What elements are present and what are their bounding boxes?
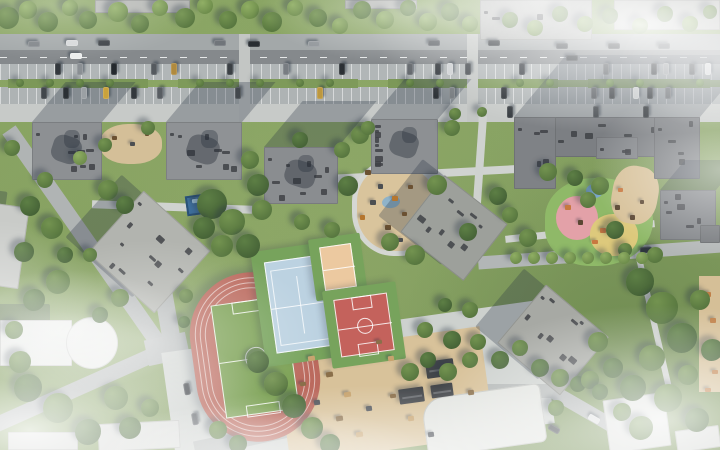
- roof-unit: [89, 164, 95, 170]
- equipment-item: [336, 416, 344, 422]
- roof-unit: [223, 164, 229, 170]
- roof-unit: [534, 132, 540, 135]
- equipment-item: [130, 142, 135, 146]
- car: [55, 63, 61, 75]
- roof-unit: [585, 133, 593, 139]
- equipment-item: [408, 416, 415, 422]
- roof-unit: [109, 262, 116, 269]
- roof-unit: [196, 165, 202, 168]
- roof-unit: [83, 134, 87, 140]
- car: [111, 63, 117, 75]
- roof-unit: [558, 140, 564, 143]
- roof-unit: [537, 333, 544, 340]
- car: [663, 63, 669, 75]
- roof-unit: [678, 152, 684, 155]
- car: [566, 55, 578, 61]
- car: [633, 87, 639, 99]
- tree: [75, 419, 101, 445]
- roof-unit: [425, 226, 432, 233]
- roof-unit: [600, 148, 604, 151]
- roof-unit: [559, 353, 567, 361]
- roof-unit: [272, 181, 280, 184]
- court-key: [351, 295, 373, 311]
- roof-unit: [126, 222, 133, 229]
- apartment-slab: [166, 122, 242, 180]
- roof-unit: [571, 131, 577, 137]
- car: [658, 43, 670, 49]
- court-center-circle: [356, 317, 374, 335]
- car: [449, 87, 455, 99]
- car: [157, 87, 163, 99]
- car: [214, 40, 226, 46]
- equipment-item: [618, 188, 623, 192]
- car: [435, 63, 441, 75]
- roof-unit: [675, 194, 681, 200]
- roof-unit: [184, 247, 192, 255]
- car: [407, 63, 413, 75]
- roof-unit: [178, 267, 184, 273]
- equipment-item: [640, 200, 644, 204]
- roof-unit: [524, 314, 531, 321]
- car: [63, 87, 69, 99]
- roof-blotch: [298, 155, 314, 172]
- roof-unit: [147, 280, 153, 286]
- roof-unit: [456, 210, 464, 217]
- car: [488, 40, 500, 46]
- roof-unit: [222, 151, 230, 154]
- roof-unit: [178, 135, 182, 138]
- kiosk-ridge: [433, 389, 451, 393]
- car: [339, 63, 345, 75]
- equipment-item: [308, 356, 316, 362]
- car: [317, 87, 323, 99]
- car: [235, 87, 241, 99]
- roof-unit: [686, 225, 694, 228]
- car: [81, 87, 87, 99]
- roof-unit: [549, 298, 556, 304]
- roof-unit: [300, 192, 306, 195]
- roof-unit: [120, 242, 125, 247]
- kiosk-ridge: [402, 394, 422, 399]
- roof-unit: [478, 224, 483, 229]
- roof-unit: [155, 234, 165, 244]
- roof-unit: [118, 268, 126, 276]
- roof-unit: [86, 149, 94, 152]
- equipment-item: [712, 370, 718, 374]
- roof-unit: [540, 296, 545, 301]
- equipment-item: [578, 220, 583, 225]
- walkway: [467, 34, 478, 122]
- equipment-item: [710, 318, 716, 323]
- roof-unit: [149, 255, 157, 263]
- roof-unit: [321, 189, 327, 195]
- roof-unit: [375, 149, 383, 152]
- roof-unit: [598, 124, 606, 127]
- car: [66, 40, 78, 46]
- roof-unit: [622, 150, 630, 153]
- equipment-item: [300, 382, 306, 387]
- car: [465, 63, 471, 75]
- equipment-item: [360, 215, 365, 220]
- car: [28, 41, 40, 47]
- car: [591, 87, 597, 99]
- white-building-southwest: [8, 432, 78, 450]
- car: [647, 87, 653, 99]
- equipment-item: [408, 185, 413, 189]
- equipment-item: [378, 184, 383, 189]
- car: [428, 40, 440, 46]
- roof-unit: [279, 195, 285, 201]
- roof-unit: [375, 125, 381, 128]
- equipment-item: [356, 432, 364, 438]
- apartment-slab: [264, 147, 338, 204]
- roof-unit: [666, 211, 672, 214]
- car: [651, 63, 657, 75]
- court-centerline: [323, 266, 355, 271]
- roof-unit: [469, 212, 477, 219]
- equipment-item: [565, 205, 571, 210]
- roof-unit: [137, 202, 142, 207]
- roof-unit: [492, 17, 500, 20]
- equipment-item: [615, 205, 620, 210]
- roof-unit: [80, 165, 86, 168]
- car: [501, 87, 507, 99]
- roof-unit: [518, 128, 522, 131]
- tree: [701, 339, 720, 361]
- car: [131, 87, 137, 99]
- car: [98, 40, 110, 46]
- roof-unit: [460, 243, 468, 251]
- roof-unit: [325, 167, 329, 173]
- roof-blotch: [201, 130, 218, 147]
- roof-unit: [668, 140, 676, 143]
- equipment-item: [428, 432, 435, 438]
- volleyball-court: [319, 243, 357, 291]
- roof-blotch: [402, 127, 417, 144]
- equipment-item: [592, 240, 598, 244]
- car: [248, 41, 260, 47]
- car: [283, 63, 289, 75]
- equipment-item: [344, 392, 352, 398]
- roof-unit: [689, 121, 693, 127]
- equipment-item: [326, 372, 334, 378]
- tree: [229, 435, 247, 450]
- roof-unit: [438, 229, 445, 236]
- equipment-item: [112, 136, 117, 140]
- equipment-item: [468, 390, 475, 396]
- roof-unit: [568, 355, 578, 365]
- equipment-item: [366, 406, 373, 412]
- tree: [320, 434, 340, 450]
- roof-unit: [36, 133, 40, 136]
- roof-unit: [447, 241, 455, 249]
- car: [519, 63, 525, 75]
- roof-unit: [375, 156, 383, 162]
- roof-unit: [546, 335, 554, 343]
- equipment-item: [630, 215, 635, 220]
- east-sliver: [700, 225, 720, 243]
- car: [308, 41, 320, 47]
- roof-unit: [375, 132, 381, 138]
- car: [593, 106, 599, 118]
- car: [171, 63, 177, 75]
- equipment-item: [370, 200, 376, 205]
- equipment-item: [365, 170, 371, 175]
- car: [705, 63, 711, 75]
- roof-unit: [375, 144, 379, 147]
- white-building-capsule-round: [66, 317, 118, 369]
- roof-unit: [71, 166, 77, 172]
- roof-unit: [664, 201, 668, 204]
- roof-unit: [579, 321, 584, 326]
- equipment-item: [385, 225, 391, 230]
- car: [665, 87, 671, 99]
- roof-blotch: [64, 130, 79, 147]
- equipment-item: [376, 340, 382, 345]
- car: [556, 43, 568, 49]
- car: [41, 87, 47, 99]
- car: [608, 43, 620, 49]
- equipment-item: [402, 212, 407, 216]
- roof-unit: [677, 204, 685, 210]
- car: [433, 87, 439, 99]
- car: [447, 63, 453, 75]
- roof-unit: [170, 133, 174, 136]
- car: [77, 63, 83, 75]
- equipment-item: [705, 388, 711, 392]
- car: [227, 63, 233, 75]
- car: [643, 106, 649, 118]
- roof-unit: [570, 318, 578, 325]
- car: [70, 53, 82, 59]
- basketball-court: [333, 293, 395, 358]
- roof-unit: [417, 214, 427, 224]
- car: [609, 87, 615, 99]
- equipment-item: [390, 394, 396, 399]
- roof-unit: [540, 130, 548, 133]
- east-complex-stub: [596, 137, 638, 159]
- roof-unit: [448, 198, 455, 204]
- equipment-item: [392, 196, 398, 201]
- roof-unit: [231, 166, 237, 172]
- car: [103, 87, 109, 99]
- car: [507, 106, 513, 118]
- aerial-view-residential-complex: [0, 0, 720, 450]
- equipment-item: [314, 400, 321, 406]
- car: [689, 63, 695, 75]
- car: [151, 63, 157, 75]
- car: [603, 63, 609, 75]
- equipment-item: [388, 356, 395, 362]
- roof-unit: [658, 128, 662, 131]
- roof-unit: [268, 158, 272, 161]
- roof-unit: [484, 11, 488, 14]
- roof-unit: [697, 218, 701, 224]
- roof-unit: [375, 163, 383, 166]
- roof-unit: [537, 14, 543, 20]
